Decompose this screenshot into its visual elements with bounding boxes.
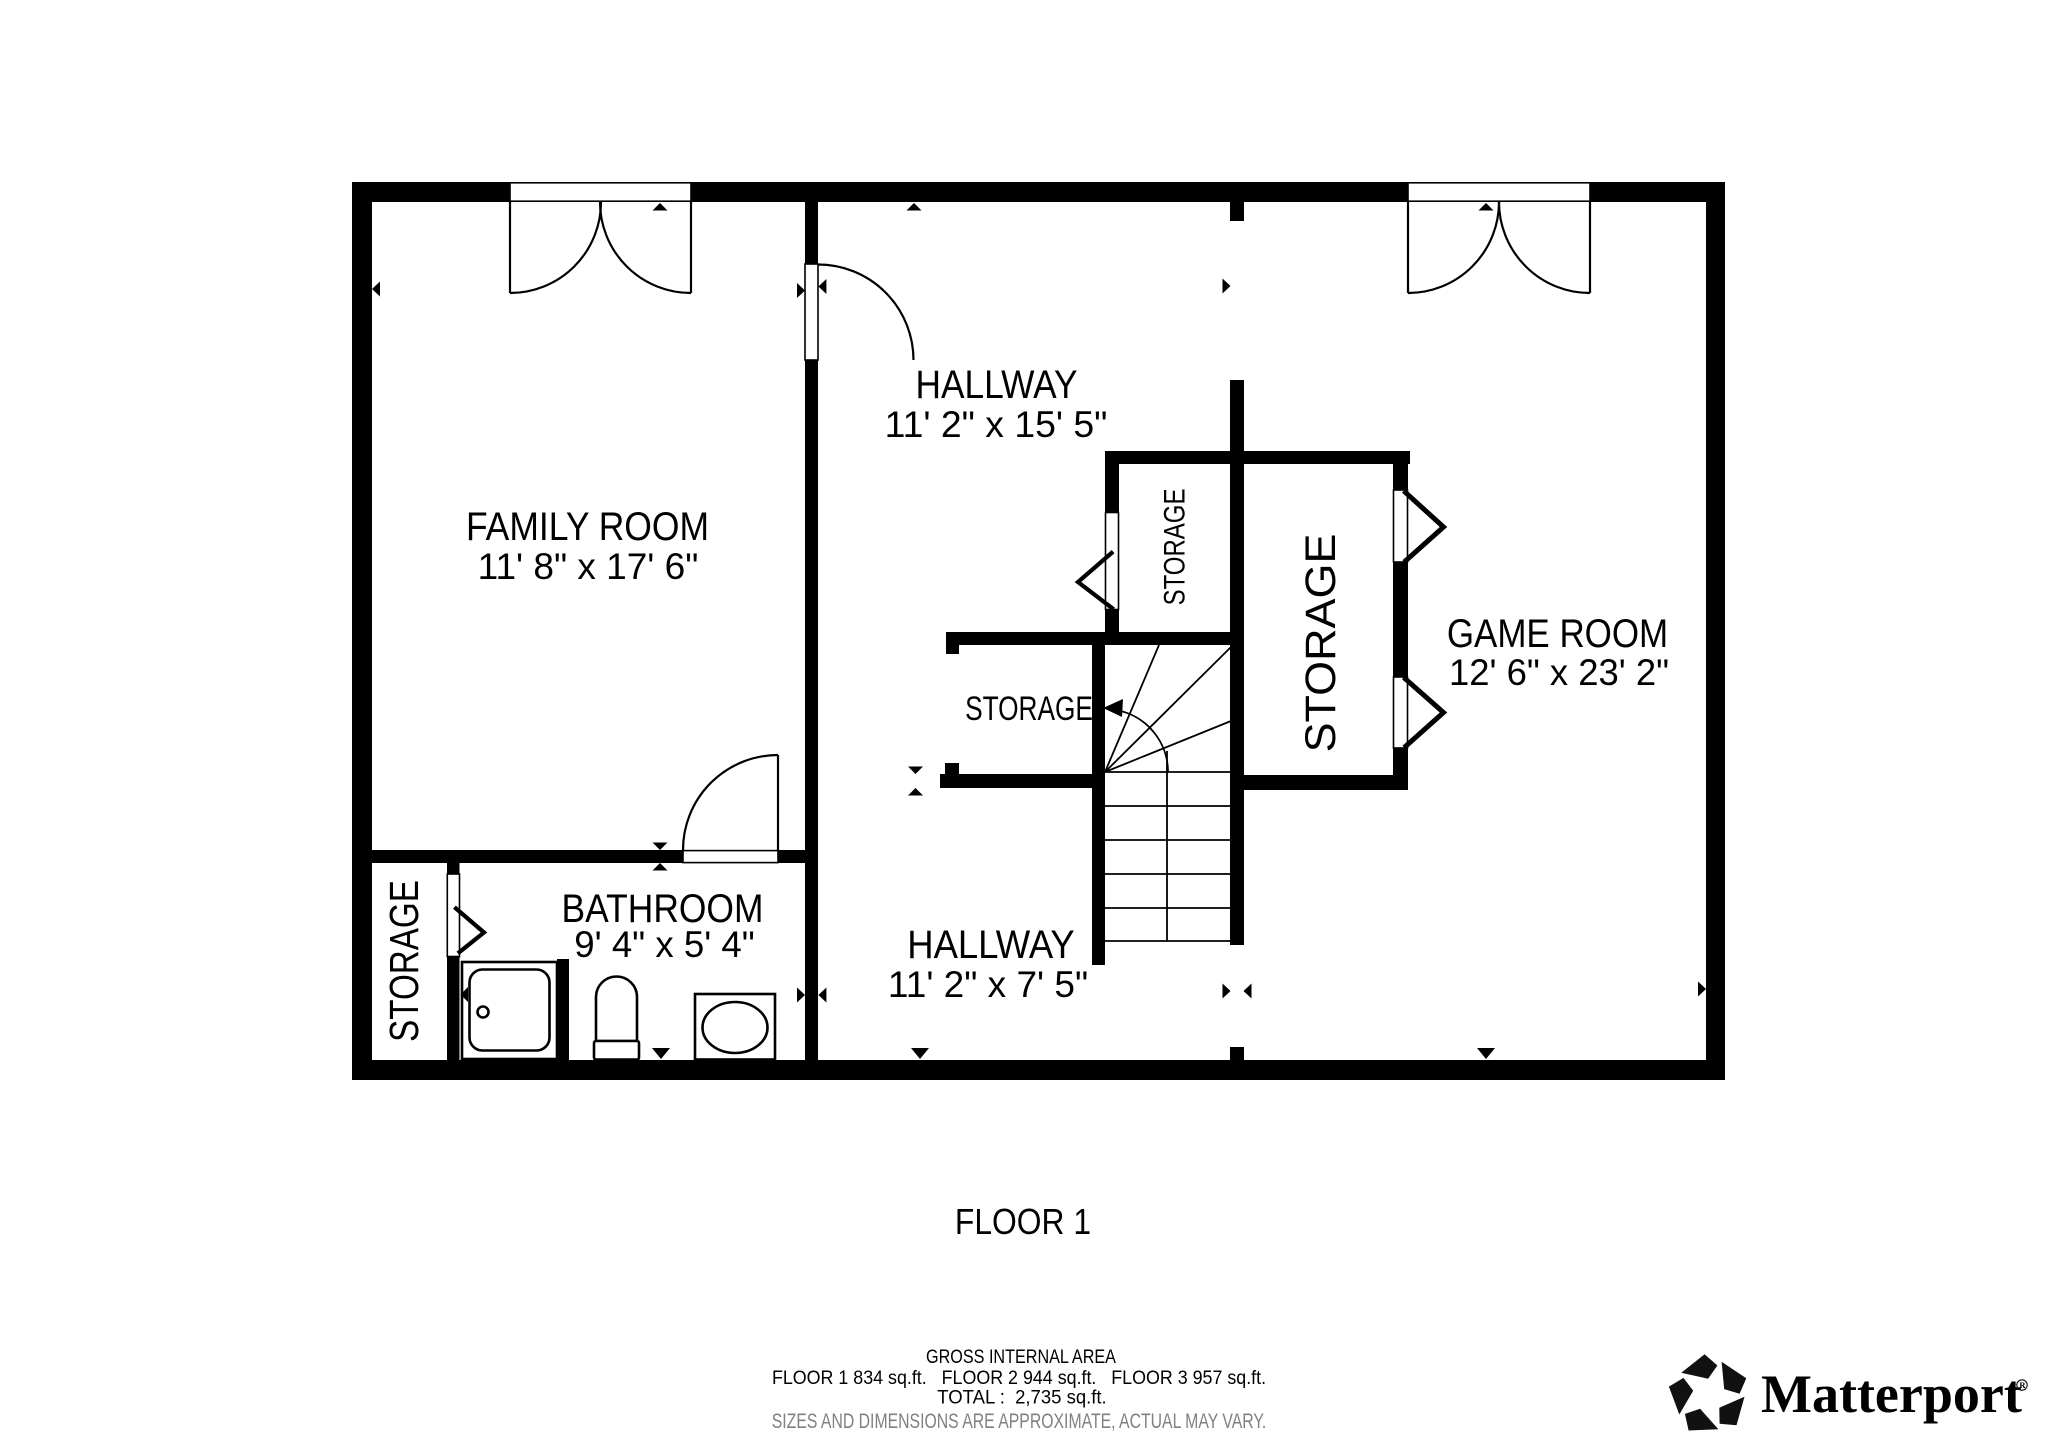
svg-text:11' 2" x 7' 5": 11' 2" x 7' 5"	[888, 964, 1088, 1005]
svg-text:11' 8" x 17' 6": 11' 8" x 17' 6"	[478, 546, 699, 587]
svg-text:FLOOR 1 834 sq.ft. FLOOR 2 9: FLOOR 1 834 sq.ft. FLOOR 2 944 sq.ft. FL…	[772, 1366, 1266, 1388]
svg-text:12' 6" x 23' 2": 12' 6" x 23' 2"	[1449, 652, 1669, 693]
svg-text:Matterport: Matterport	[1761, 1364, 2022, 1424]
svg-text:GAME ROOM: GAME ROOM	[1447, 611, 1668, 656]
svg-text:R: R	[2019, 1380, 2026, 1390]
svg-text:SIZES AND DIMENSIONS ARE APPRO: SIZES AND DIMENSIONS ARE APPROXIMATE, AC…	[772, 1409, 1266, 1433]
svg-text:11' 2" x 15' 5": 11' 2" x 15' 5"	[885, 403, 1108, 445]
svg-text:GROSS INTERNAL AREA: GROSS INTERNAL AREA	[926, 1346, 1116, 1368]
svg-text:FLOOR 1: FLOOR 1	[955, 1202, 1091, 1242]
svg-text:TOTAL : 2,735 sq.ft.: TOTAL : 2,735 sq.ft.	[937, 1387, 1106, 1409]
svg-text:STORAGE: STORAGE	[1297, 534, 1345, 753]
svg-text:STORAGE: STORAGE	[1157, 489, 1191, 606]
svg-text:STORAGE: STORAGE	[965, 691, 1093, 728]
svg-text:STORAGE: STORAGE	[381, 880, 427, 1042]
svg-text:FAMILY ROOM: FAMILY ROOM	[466, 505, 709, 549]
svg-text:HALLWAY: HALLWAY	[915, 362, 1077, 407]
svg-text:HALLWAY: HALLWAY	[907, 922, 1075, 967]
svg-text:9' 4" x 5' 4": 9' 4" x 5' 4"	[574, 924, 754, 965]
